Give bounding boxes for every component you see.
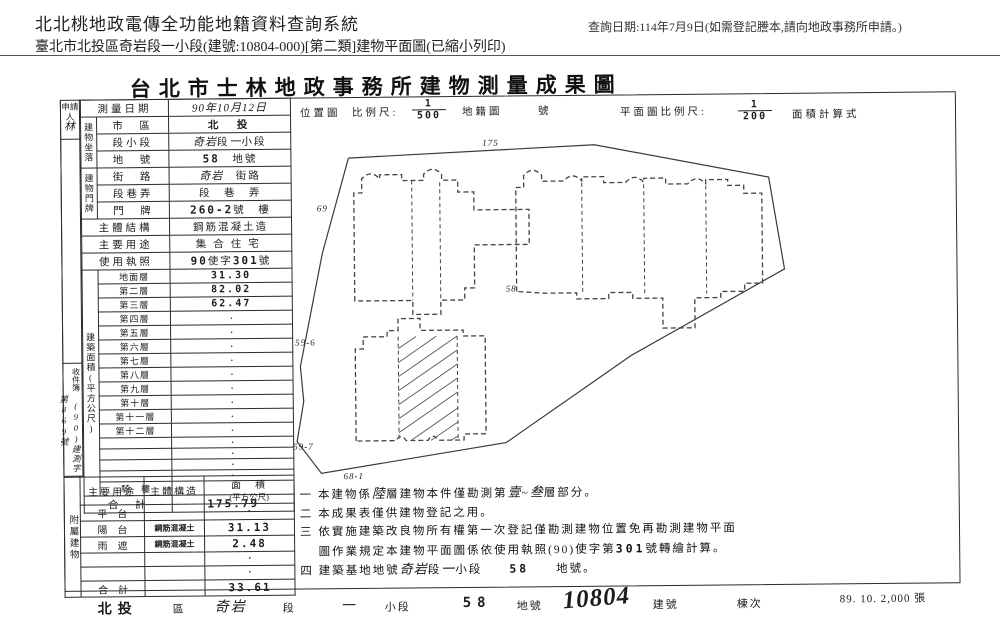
field-label: 第四層: [98, 311, 170, 326]
annex-header-structure: 主體構造: [144, 476, 204, 505]
parcel-label: 59-6: [295, 337, 316, 347]
field-label: 第八層: [99, 367, 171, 382]
value-segment: 一: [229, 133, 241, 149]
annex-area: 31.13: [204, 519, 294, 536]
plan-scale-denominator: 200: [738, 110, 772, 122]
value-segment: 地號。: [529, 560, 597, 579]
value-segment: 奇岩: [193, 133, 217, 149]
scanned-form: 台北市士林地政事務所建物測量成果圖 申請人 林 收件簿 (90)建測字第869號…: [38, 57, 984, 644]
applicant-cell: 申請人 林: [60, 100, 80, 140]
value-segment: ·: [231, 448, 234, 458]
field-value: 90使字301號: [170, 251, 292, 269]
value-segment: 301: [616, 539, 646, 558]
value-segment: ·: [231, 411, 234, 421]
annex-header-area: 面 積 (平方公尺): [204, 475, 294, 504]
building-b-dividers: [582, 182, 707, 295]
field-value: 82.02: [170, 282, 292, 297]
value-segment: 301: [233, 253, 259, 266]
field-value: 鋼筋混凝土造: [169, 217, 291, 235]
value-segment: 壹: [507, 483, 521, 502]
location-scale-numerator: 1: [412, 98, 446, 109]
field-value: 62.47: [170, 296, 292, 311]
system-title: 北北桃地政電傳全功能地籍資料查詢系統: [35, 10, 359, 35]
value-segment: 58: [509, 559, 529, 578]
annex-header-area-unit: (平方公尺): [205, 491, 294, 504]
plan-scale-numerator: 1: [738, 99, 772, 110]
value-segment: 段 巷 弄: [199, 184, 262, 200]
value-segment: 層部分。: [544, 484, 598, 503]
field-value: 90年10月12日: [168, 98, 290, 116]
value-segment: 二 本成果表僅供建物登記之用。: [300, 503, 494, 523]
field-value: ·: [171, 408, 293, 423]
value-segment: ·: [248, 567, 251, 578]
plan-scale-fraction: 1 200: [738, 99, 772, 122]
field-value: 段 巷 弄: [169, 183, 291, 201]
annex-usage: 陽 台: [80, 521, 144, 538]
field-label: 市 區: [97, 116, 169, 134]
cadastral-no-label: 號: [538, 103, 552, 118]
value-segment: 北 投: [208, 117, 252, 132]
field-value: 奇岩 街路: [169, 166, 291, 184]
field-label: 地面層: [98, 269, 170, 284]
value-segment: ~: [521, 484, 529, 503]
field-value: ·: [171, 380, 293, 395]
annex-header-row: 附屬建物 主要用途 主體構造 面 積 (平方公尺): [64, 475, 294, 505]
value-segment: 段: [217, 134, 230, 149]
survey-notes: 一 本建物係 陸 層建物本件僅勘測第壹~叁 層部分。二 本成果表僅供建物登記之用…: [300, 479, 951, 581]
annex-usage: [81, 567, 145, 582]
field-label: 段巷弄: [97, 184, 169, 202]
value-segment: 陸: [372, 485, 386, 504]
table-row: 測量日期90年10月12日: [80, 98, 290, 117]
field-label: 第三層: [98, 297, 170, 312]
footer-segment: 小段: [385, 599, 411, 615]
field-label: 第七層: [99, 353, 171, 368]
field-value: 奇岩段一小段: [169, 132, 291, 150]
annex-area: ·: [205, 565, 295, 580]
value-segment: 號 樓: [233, 201, 271, 216]
field-label: [100, 459, 172, 471]
building-c-outline: [355, 318, 486, 441]
value-segment: ·: [231, 397, 234, 407]
survey-info-table: 測量日期90年10月12日建物坐落市 區北 投段小段奇岩段一小段地 號58 地號…: [80, 98, 295, 514]
annex-header-usage: 主要用途: [80, 477, 144, 506]
field-value: ·: [170, 310, 292, 325]
value-segment: 90年10月12日: [192, 99, 267, 116]
receipt-cell: 收件簿 (90)建測字第869號: [62, 364, 83, 477]
field-label: 第二層: [98, 283, 170, 298]
scale-label: 比例尺:: [352, 105, 399, 120]
annex-usage: 平 台: [80, 505, 144, 522]
field-label: [100, 448, 172, 460]
value-segment: 2.48: [232, 537, 267, 550]
annex-structure: 鋼筋混凝土: [144, 520, 204, 537]
building-a-dividers: [412, 180, 441, 300]
value-segment: 82.02: [211, 284, 251, 295]
building-b-outline: [516, 168, 764, 329]
table-row: 主體結構鋼筋混凝土造: [81, 217, 291, 236]
footer-segment: 段: [283, 600, 296, 616]
value-segment: 號: [259, 252, 272, 267]
field-value: 58 地號: [169, 149, 291, 167]
applicant-name: 林: [64, 121, 76, 133]
table-row: 建物門牌街 路奇岩 街路: [81, 166, 291, 185]
field-label: 測量日期: [80, 99, 168, 117]
value-segment: 奇岩: [199, 167, 223, 183]
field-value: 260-2號 樓: [169, 200, 291, 218]
parcel-label: 68-1: [343, 471, 364, 481]
field-value: 集合住宅: [170, 234, 292, 252]
value-segment: 一: [441, 560, 455, 579]
table-row: 段巷弄段 巷 弄: [81, 183, 291, 202]
footer-segment: 建號: [653, 596, 679, 612]
field-label: 主體結構: [81, 218, 169, 236]
field-label: 第十層: [99, 395, 171, 410]
table-row: 使用執照90使字301號: [82, 251, 292, 270]
value-segment: ·: [231, 437, 234, 447]
document-subtitle: 臺北市北投區奇岩段一小段(建號:10804-000)[第二類]建物平面圖(已縮小…: [35, 36, 506, 56]
site-plan-area: 1756959-659-768-158 位置圖 比例尺: 1 500 地籍圖 號…: [290, 91, 961, 589]
annex-usage: [81, 553, 145, 568]
table-row: 地 號58 地號: [81, 149, 291, 168]
parcel-label: 58: [506, 283, 517, 293]
table-row: 門 牌260-2號 樓: [81, 200, 291, 219]
field-label: 段小段: [97, 133, 169, 151]
field-label: [100, 437, 172, 449]
value-segment: ·: [231, 425, 234, 435]
field-label: 地 號: [97, 150, 169, 168]
value-segment: 33.61: [228, 581, 271, 594]
field-label: 街 路: [97, 167, 169, 185]
table-row: 主要用途集合住宅: [82, 234, 292, 253]
value-segment: ·: [231, 459, 234, 469]
value-segment: 小段: [241, 134, 266, 149]
annex-structure: 鋼筋混凝土: [145, 536, 205, 553]
table-row: 段小段奇岩段一小段: [81, 132, 291, 151]
field-value: ·: [171, 352, 293, 367]
receipt-number: (90)建測字第869號: [59, 395, 82, 474]
field-label: 第五層: [99, 325, 171, 340]
value-segment: 街路: [223, 168, 261, 183]
value-segment: 層建物本件僅勘測第: [386, 485, 508, 505]
building-c-dividers: [398, 336, 458, 441]
footer-segment: 區: [173, 601, 186, 617]
field-value: 北 投: [169, 115, 291, 133]
group-label: 建物門牌: [81, 168, 97, 219]
value-segment: 集合住宅: [196, 235, 266, 251]
footer-segment: 58: [463, 595, 492, 611]
footer-segment: 一: [341, 595, 357, 615]
value-segment: 號轉繪計算。: [645, 539, 726, 558]
parcel-boundary: [294, 143, 786, 474]
query-date-note: 查詢日期:114年7月9日(如需登記謄本,請向地政事務所申請。): [588, 18, 902, 35]
plan-scale-label: 平面圖比例尺:: [620, 104, 707, 120]
field-label: 主要用途: [82, 235, 170, 253]
value-segment: ·: [230, 327, 233, 337]
value-segment: ·: [248, 506, 251, 517]
applicant-label: 申請人: [61, 102, 78, 122]
footer-segment: 奇岩: [215, 596, 247, 616]
print-batch-info: 89. 10. 2,000 張: [840, 590, 927, 607]
parcel-label: 59-7: [293, 441, 314, 451]
value-segment: ·: [230, 355, 233, 365]
value-segment: 一 本建物係: [300, 486, 373, 505]
annex-structure: [145, 566, 205, 581]
field-value: ·: [171, 324, 293, 339]
value-segment: 四 建築基地地號: [300, 562, 400, 581]
cadastral-map-label: 地籍圖: [462, 104, 503, 119]
building-a-outline: [354, 168, 530, 315]
field-label: 第六層: [99, 339, 171, 354]
value-segment: 地號: [220, 150, 258, 165]
value-segment: 奇岩: [400, 560, 428, 579]
field-label: 第十二層: [99, 423, 171, 438]
field-value: 31.30: [170, 268, 292, 283]
annex-area: ·: [205, 551, 295, 566]
annex-structure: [144, 504, 204, 521]
location-map-label: 位置圖: [300, 105, 341, 120]
parcel-label: 175: [482, 138, 499, 148]
field-label: 門 牌: [97, 201, 169, 219]
annex-structure: [145, 552, 205, 567]
value-segment: 90: [191, 254, 208, 267]
value-segment: ·: [230, 313, 233, 323]
field-label: 第九層: [99, 381, 171, 396]
location-scale-denominator: 500: [412, 109, 446, 121]
value-segment: 58: [202, 152, 219, 165]
value-segment: 31.13: [228, 521, 271, 534]
footer-segment: 地號: [517, 597, 543, 613]
value-segment: ·: [230, 369, 233, 379]
value-segment: ·: [231, 383, 234, 393]
value-segment: 260-2: [190, 203, 233, 216]
parcel-label: 69: [317, 203, 328, 213]
value-segment: 使字: [208, 253, 233, 268]
annex-header-area-title: 面 積: [204, 476, 293, 492]
value-segment: ·: [230, 341, 233, 351]
footer-segment: 10804: [562, 582, 632, 615]
building-c-hatching: [398, 336, 458, 441]
annex-side-label: 附屬建物: [64, 477, 81, 597]
field-value: ·: [171, 366, 293, 381]
location-scale-fraction: 1 500: [412, 98, 446, 121]
field-label: 第十一層: [99, 409, 171, 424]
footer-segment: 棟次: [737, 595, 763, 611]
value-segment: 小段: [455, 561, 509, 580]
receipt-label: 收件簿: [71, 368, 80, 392]
footer-segment: 北投: [98, 598, 138, 618]
field-value: ·: [171, 338, 293, 353]
field-value: ·: [171, 422, 293, 437]
empty-strip-cell: [60, 140, 82, 364]
value-segment: 段: [428, 561, 442, 580]
value-segment: ·: [248, 553, 251, 564]
group-label: 建物坐落: [81, 117, 97, 168]
value-segment: 鋼筋混凝土造: [193, 218, 268, 234]
area-calc-label: 面積計算式: [792, 106, 860, 122]
annex-area: 2.48: [205, 535, 295, 552]
annex-usage: 雨 遮: [81, 537, 145, 554]
header-divider: [0, 55, 1000, 56]
field-label: 使用執照: [82, 252, 170, 270]
value-segment: 62.47: [211, 298, 251, 309]
table-row: 建物坐落市 區北 投: [81, 115, 291, 134]
value-segment: 31.30: [211, 270, 251, 281]
field-value: ·: [171, 394, 293, 409]
annex-area: ·: [204, 503, 294, 520]
footer-strip: 89. 10. 2,000 張 北投區奇岩段一小段58地號10804建號棟次: [65, 587, 961, 630]
plan-header-row: 位置圖 比例尺: 1 500 地籍圖 號 平面圖比例尺: 1 200 面積計算式: [290, 91, 956, 133]
value-segment: 叁: [530, 483, 544, 502]
annex-structures-table: 附屬建物 主要用途 主體構造 面 積 (平方公尺) 平 台·陽 台鋼筋混凝土31…: [63, 475, 295, 598]
